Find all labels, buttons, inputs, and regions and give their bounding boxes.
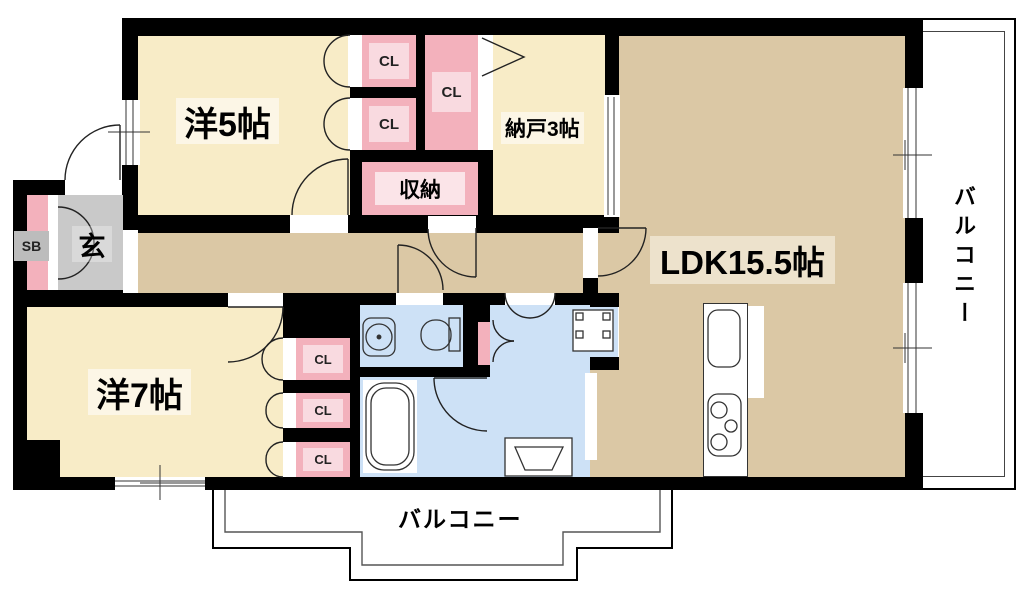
kitchen-pass-opening [748, 306, 764, 398]
bedroom5-door-opening [290, 215, 348, 233]
kitchen-counter [703, 303, 748, 477]
closet-tall-inner: CL [432, 72, 471, 112]
closet-2-label: CL [314, 403, 331, 418]
balcony-bottom-label: バルコニー [398, 502, 523, 532]
window-bedroom5-left [120, 100, 140, 165]
closet-tall-door [478, 35, 493, 150]
wall-bedroom7-notch [13, 440, 60, 490]
shoe-box-label-box: SB [14, 231, 49, 261]
bathtub-area [363, 380, 417, 473]
closet-1-door [283, 338, 296, 380]
balcony-right-label: バルコニー [948, 140, 978, 375]
storage-unit-inner: 収納 [375, 172, 465, 205]
front-door-swing-icon [65, 125, 120, 180]
bedroom5-label: 洋5帖 [176, 98, 279, 144]
shoe-box-gap [48, 195, 58, 290]
washroom-slider [585, 373, 597, 460]
ldk-label: LDK15.5帖 [650, 236, 835, 284]
washroom-floor [490, 305, 590, 477]
storage-label: 収納 [399, 174, 441, 204]
closet-2-door [283, 393, 296, 428]
closet-3-label: CL [314, 452, 331, 467]
closet-3-inner: CL [303, 448, 343, 471]
storage3-ldk-slider [604, 95, 620, 217]
closet-2-inner: CL [303, 399, 343, 422]
wall-recess-bottom [588, 357, 620, 370]
shoe-box-label: SB [22, 238, 41, 254]
floor-plan: CL CL CL 収納 CL CL CL SB [0, 0, 1032, 591]
closet-b-inner: CL [369, 106, 409, 142]
washroom-niche [478, 322, 490, 365]
entrance-step [123, 230, 138, 293]
closet-3-door [283, 442, 296, 477]
bedroom7-label: 洋7帖 [88, 369, 191, 415]
storage3-label: 納戸3帖 [501, 112, 584, 144]
closet-b-label: CL [379, 116, 399, 133]
closet-a-inner: CL [369, 43, 409, 79]
entrance-label: 玄 [72, 226, 112, 262]
closet-1-label: CL [314, 352, 331, 367]
washer-recess-floor [590, 307, 618, 357]
window-ldk-right-1 [903, 88, 923, 218]
washroom-door-opening [505, 293, 555, 305]
front-door-opening [65, 180, 122, 195]
ldk-door-opening [583, 228, 598, 278]
storage-door-opening [428, 216, 476, 233]
closet-1-inner: CL [303, 345, 343, 373]
bedroom7-door-opening [228, 293, 283, 307]
hallway-floor-2 [598, 233, 619, 293]
window-bedroom7-bottom [115, 477, 205, 490]
toilet-door-opening [396, 293, 443, 305]
toilet-floor [360, 305, 463, 367]
closet-a-door [348, 35, 362, 87]
hallway-floor [138, 233, 583, 293]
closet-tall-label: CL [442, 84, 462, 101]
window-ldk-right-2 [903, 283, 923, 413]
closet-a-label: CL [379, 53, 399, 70]
closet-b-door [348, 98, 362, 150]
